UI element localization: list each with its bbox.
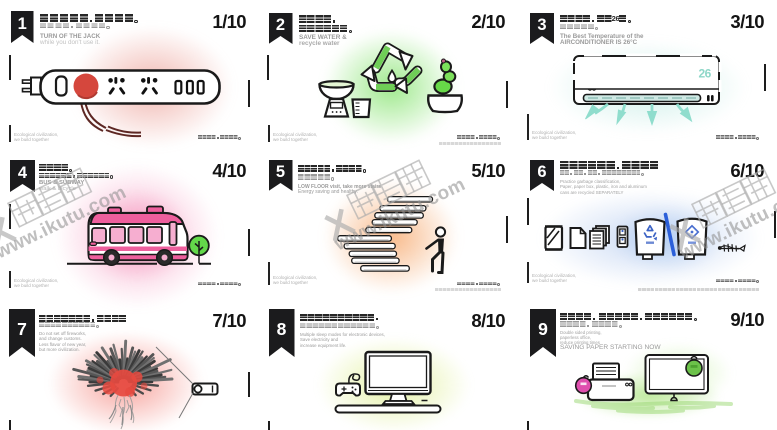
svg-text:26: 26 (699, 67, 712, 81)
